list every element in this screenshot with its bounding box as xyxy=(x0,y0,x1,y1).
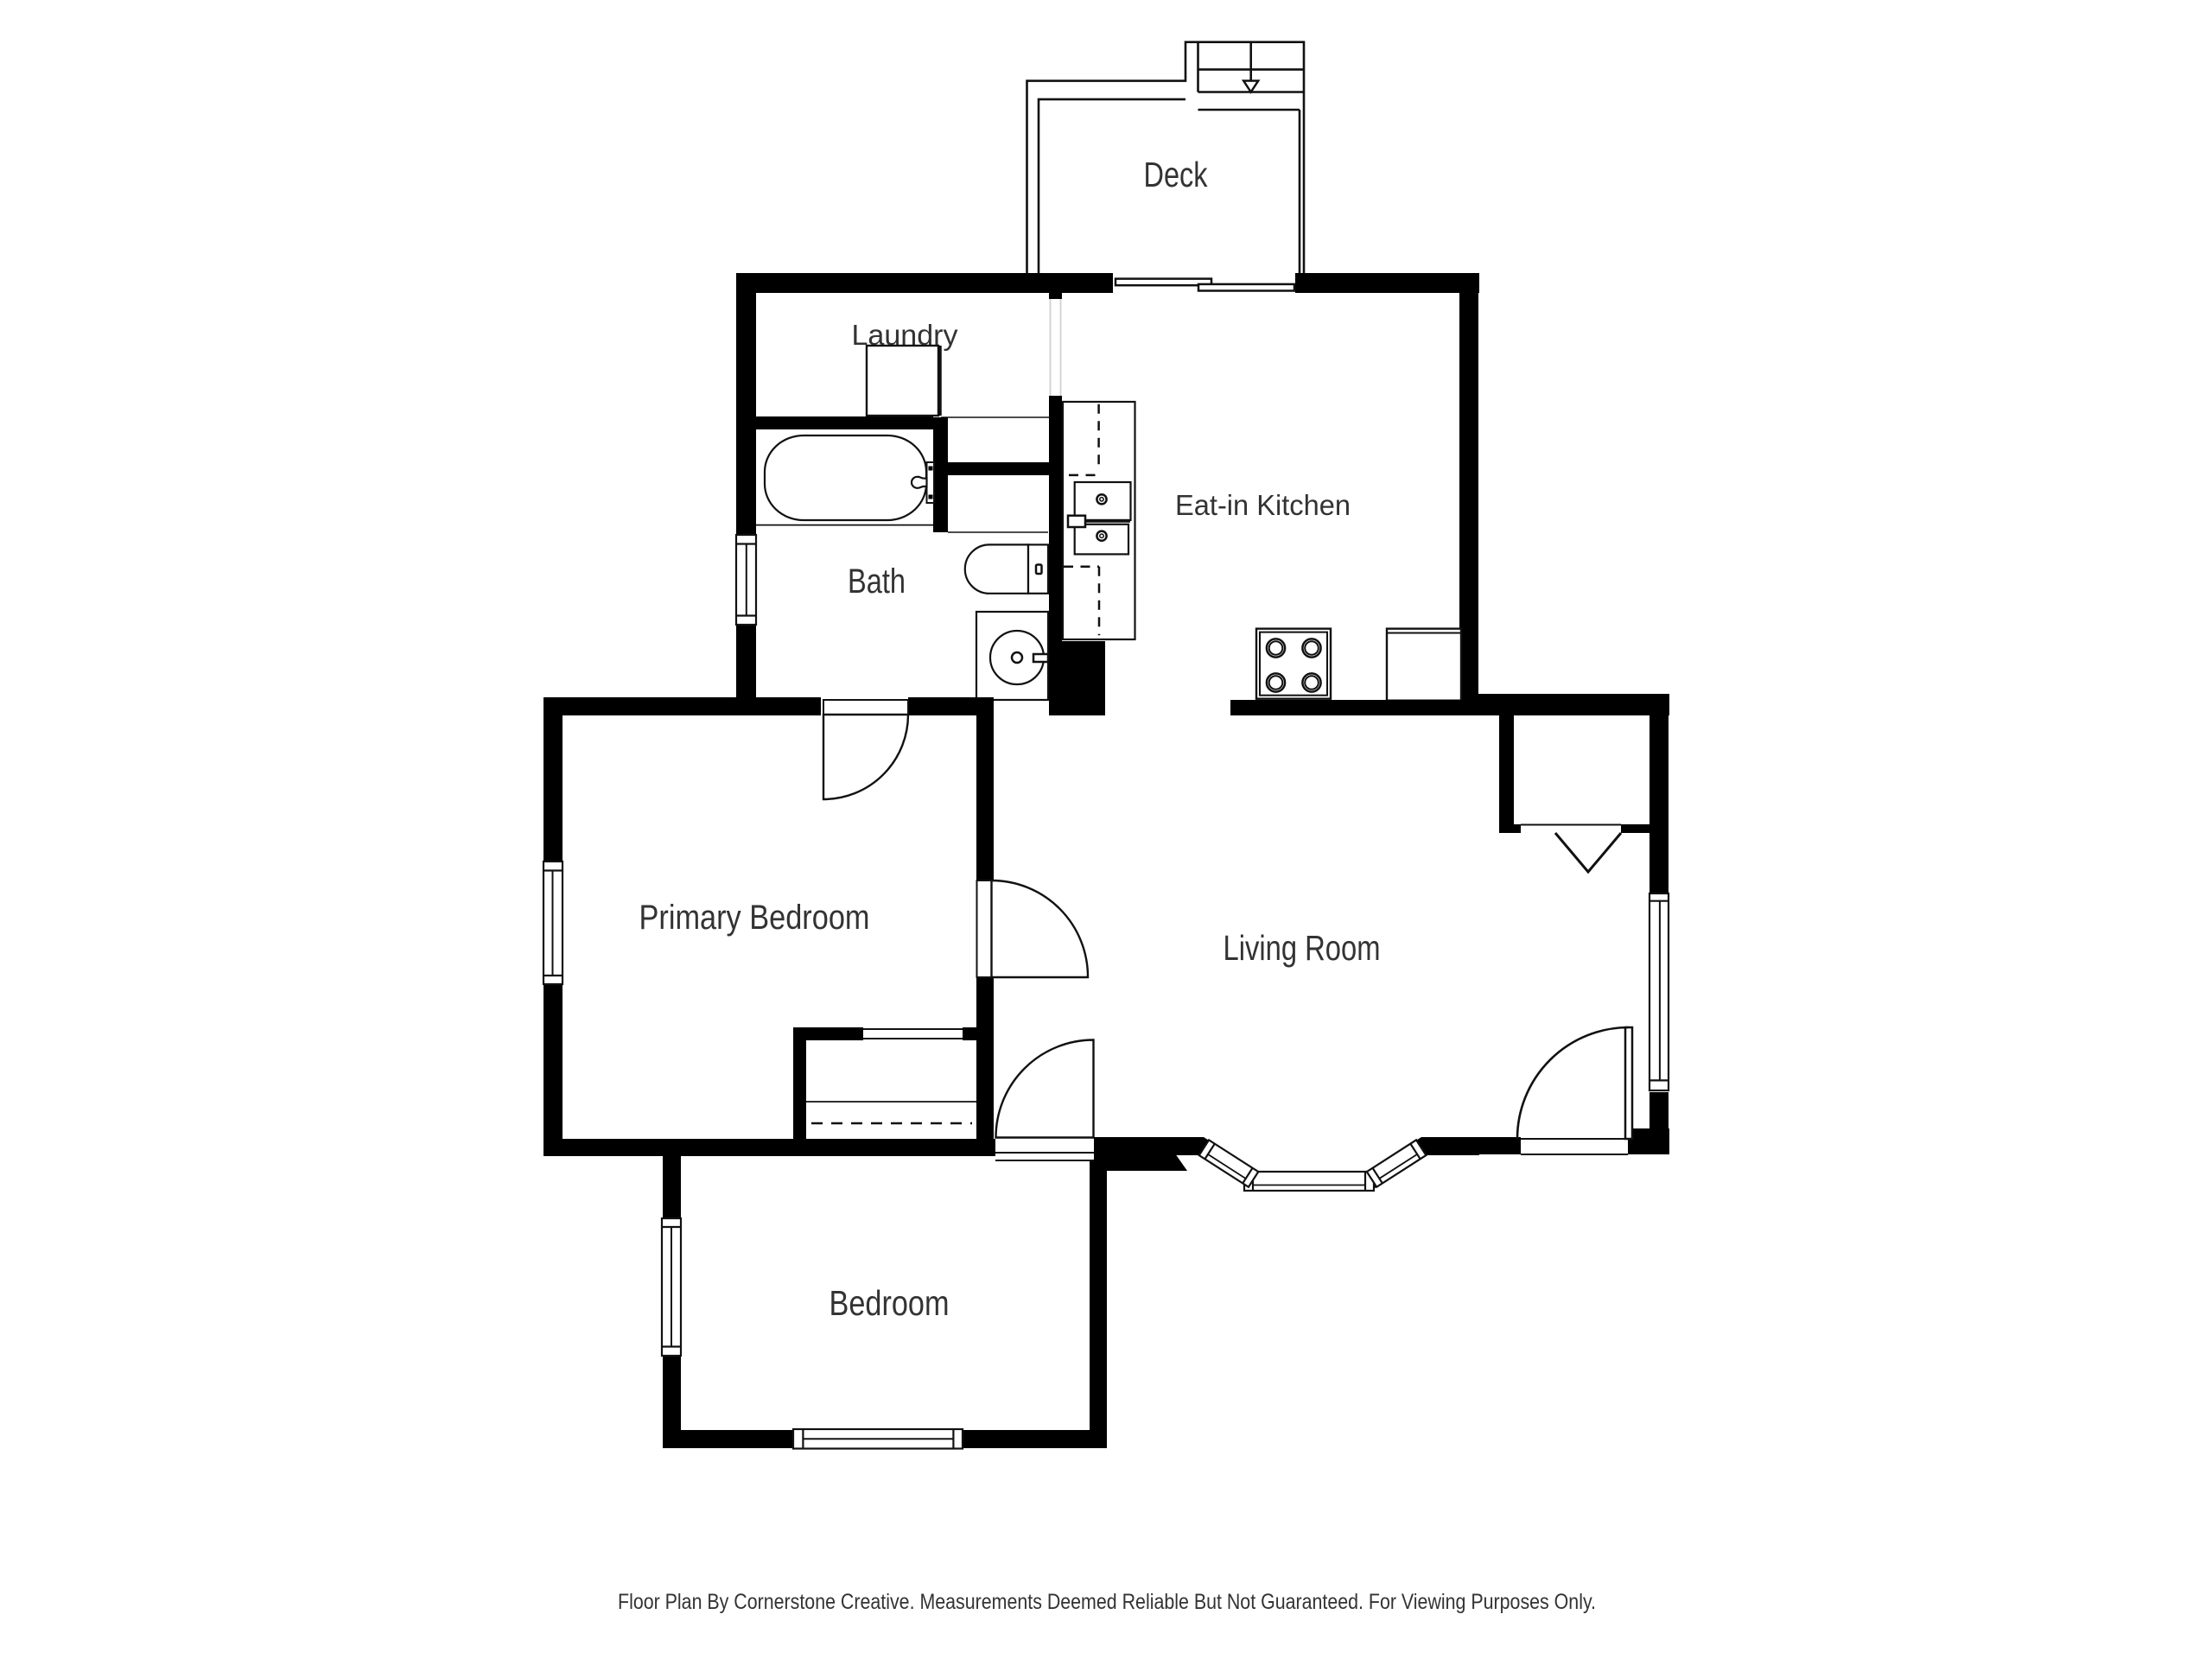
svg-text:Bedroom: Bedroom xyxy=(829,1283,950,1323)
svg-text:Floor Plan By Cornerstone Crea: Floor Plan By Cornerstone Creative. Meas… xyxy=(618,1590,1596,1614)
svg-text:Eat-in Kitchen: Eat-in Kitchen xyxy=(1175,489,1351,521)
svg-text:Primary Bedroom: Primary Bedroom xyxy=(639,899,870,937)
svg-text:Bath: Bath xyxy=(848,563,906,601)
svg-text:Deck: Deck xyxy=(1144,155,1208,194)
svg-text:Living Room: Living Room xyxy=(1224,928,1381,968)
